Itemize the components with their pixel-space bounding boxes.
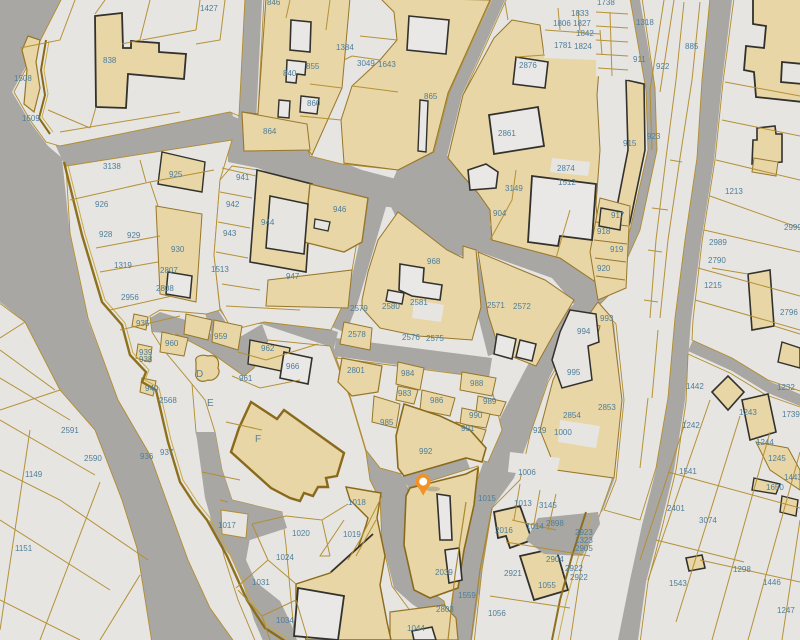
svg-text:2922: 2922: [570, 573, 588, 582]
svg-text:940: 940: [145, 384, 159, 393]
svg-text:1806 1827: 1806 1827: [553, 19, 591, 28]
svg-text:1443: 1443: [784, 473, 800, 482]
svg-text:1013: 1013: [514, 499, 532, 508]
svg-text:968: 968: [427, 257, 441, 266]
svg-text:1559: 1559: [458, 591, 476, 600]
svg-text:986: 986: [430, 396, 444, 405]
svg-text:929: 929: [127, 231, 141, 240]
svg-text:988: 988: [470, 379, 484, 388]
svg-text:2591: 2591: [61, 426, 79, 435]
svg-text:1650: 1650: [766, 483, 784, 492]
svg-text:1044: 1044: [407, 624, 425, 633]
svg-text:2581: 2581: [410, 298, 428, 307]
svg-text:990: 990: [469, 411, 483, 420]
svg-text:1541: 1541: [679, 467, 697, 476]
svg-text:1242: 1242: [682, 421, 700, 430]
svg-text:1824: 1824: [574, 42, 592, 51]
svg-text:1643: 1643: [378, 60, 396, 69]
svg-text:1319: 1319: [114, 261, 132, 270]
svg-text:2575: 2575: [426, 334, 444, 343]
svg-text:2898: 2898: [546, 519, 564, 528]
svg-text:840: 840: [283, 69, 297, 78]
svg-text:2016: 2016: [495, 526, 513, 535]
svg-text:2999: 2999: [784, 223, 800, 232]
svg-text:2571: 2571: [487, 301, 505, 310]
svg-text:1543: 1543: [669, 579, 687, 588]
svg-text:3074: 3074: [699, 516, 717, 525]
svg-text:838: 838: [103, 56, 117, 65]
svg-text:2568: 2568: [159, 396, 177, 405]
svg-text:960: 960: [165, 339, 179, 348]
svg-text:941: 941: [236, 173, 250, 182]
svg-text:1781: 1781: [554, 41, 572, 50]
svg-text:1833: 1833: [571, 9, 589, 18]
svg-text:3145: 3145: [539, 501, 557, 510]
svg-text:1446: 1446: [763, 578, 781, 587]
svg-text:944: 944: [261, 218, 275, 227]
svg-text:3138: 3138: [103, 162, 121, 171]
svg-text:1247: 1247: [777, 606, 795, 615]
svg-text:994: 994: [577, 327, 591, 336]
svg-text:943: 943: [223, 229, 237, 238]
svg-text:938: 938: [139, 355, 153, 364]
svg-text:1842: 1842: [576, 29, 594, 38]
svg-text:1232: 1232: [777, 383, 795, 392]
svg-text:1442: 1442: [686, 382, 704, 391]
svg-text:2576: 2576: [402, 333, 420, 342]
svg-text:1006: 1006: [518, 468, 536, 477]
svg-text:1244: 1244: [756, 438, 774, 447]
svg-text:2876: 2876: [519, 61, 537, 70]
svg-text:2989: 2989: [709, 238, 727, 247]
svg-text:1019: 1019: [343, 530, 361, 539]
svg-text:2808: 2808: [156, 284, 174, 293]
svg-text:962: 962: [261, 344, 275, 353]
svg-text:1245: 1245: [768, 454, 786, 463]
svg-text:992: 992: [419, 447, 433, 456]
svg-text:989: 989: [483, 397, 497, 406]
svg-text:942: 942: [226, 200, 240, 209]
svg-text:2572: 2572: [513, 302, 531, 311]
svg-text:1149: 1149: [25, 470, 43, 479]
svg-text:929: 929: [533, 426, 547, 435]
svg-text:985: 985: [380, 418, 394, 427]
svg-text:1151: 1151: [15, 544, 33, 553]
svg-text:1015: 1015: [478, 494, 496, 503]
svg-text:918: 918: [597, 227, 611, 236]
svg-text:3149: 3149: [505, 184, 523, 193]
svg-text:2861: 2861: [498, 129, 516, 138]
svg-text:1509: 1509: [22, 114, 40, 123]
svg-text:904: 904: [493, 209, 507, 218]
svg-text:1034: 1034: [276, 616, 294, 625]
svg-text:2578: 2578: [348, 330, 366, 339]
svg-text:855: 855: [306, 62, 320, 71]
svg-text:2807: 2807: [160, 266, 178, 275]
svg-text:1014: 1014: [526, 522, 544, 531]
svg-text:983: 983: [398, 389, 412, 398]
svg-text:2803: 2803: [436, 605, 454, 614]
svg-text:2579: 2579: [350, 304, 368, 313]
svg-text:860: 860: [307, 99, 321, 108]
svg-text:984: 984: [401, 369, 415, 378]
svg-text:1024: 1024: [276, 553, 294, 562]
svg-text:1018: 1018: [348, 498, 366, 507]
svg-text:1243: 1243: [739, 408, 757, 417]
svg-text:2796: 2796: [780, 308, 798, 317]
svg-text:936: 936: [140, 452, 154, 461]
svg-text:2580: 2580: [382, 302, 400, 311]
svg-text:991: 991: [461, 424, 475, 433]
svg-text:1508: 1508: [14, 74, 32, 83]
svg-text:961: 961: [239, 374, 253, 383]
svg-text:885: 885: [685, 42, 699, 51]
svg-text:1056: 1056: [488, 609, 506, 618]
svg-text:925: 925: [169, 170, 183, 179]
svg-text:2853: 2853: [598, 403, 616, 412]
svg-text:966: 966: [286, 362, 300, 371]
svg-text:2854: 2854: [563, 411, 581, 420]
svg-text:2921: 2921: [504, 569, 522, 578]
svg-text:D: D: [196, 369, 203, 380]
svg-text:923: 923: [647, 132, 661, 141]
svg-text:920: 920: [597, 264, 611, 273]
svg-text:993: 993: [600, 314, 614, 323]
svg-text:959: 959: [214, 332, 228, 341]
svg-text:1055: 1055: [538, 581, 556, 590]
svg-text:1000: 1000: [554, 428, 572, 437]
svg-text:995: 995: [567, 368, 581, 377]
svg-text:922: 922: [656, 62, 670, 71]
svg-text:2874: 2874: [557, 164, 575, 173]
svg-text:947: 947: [286, 272, 300, 281]
svg-text:F: F: [255, 434, 261, 445]
svg-text:1031: 1031: [252, 578, 270, 587]
svg-text:865: 865: [424, 92, 438, 101]
svg-text:1427: 1427: [200, 4, 218, 13]
svg-text:1020: 1020: [292, 529, 310, 538]
svg-text:864: 864: [263, 127, 277, 136]
svg-text:911: 911: [633, 55, 646, 64]
svg-text:946: 946: [333, 205, 347, 214]
svg-text:3049: 3049: [357, 59, 375, 68]
svg-text:1213: 1213: [725, 187, 743, 196]
svg-text:2801: 2801: [347, 366, 365, 375]
svg-text:1298: 1298: [733, 565, 751, 574]
svg-text:1017: 1017: [218, 521, 236, 530]
svg-text:2922: 2922: [565, 564, 583, 573]
svg-text:926: 926: [95, 200, 109, 209]
svg-text:930: 930: [171, 245, 185, 254]
svg-text:1739: 1739: [782, 410, 800, 419]
svg-text:1513: 1513: [211, 265, 229, 274]
svg-text:2956: 2956: [121, 293, 139, 302]
svg-text:2790: 2790: [708, 256, 726, 265]
svg-text:2905: 2905: [575, 544, 593, 553]
svg-text:1318: 1318: [636, 18, 654, 27]
svg-text:E: E: [207, 398, 214, 409]
svg-text:919: 919: [610, 245, 624, 254]
svg-text:917: 917: [611, 211, 625, 220]
svg-text:1512: 1512: [558, 178, 576, 187]
svg-text:928: 928: [99, 230, 113, 239]
svg-text:1215: 1215: [704, 281, 722, 290]
svg-text:2039: 2039: [435, 568, 453, 577]
svg-text:2590: 2590: [84, 454, 102, 463]
svg-text:2904: 2904: [546, 555, 564, 564]
svg-text:1738: 1738: [597, 0, 615, 7]
svg-text:846: 846: [267, 0, 281, 7]
svg-text:915: 915: [623, 139, 637, 148]
svg-text:1384: 1384: [336, 43, 354, 52]
svg-text:2401: 2401: [667, 504, 685, 513]
svg-text:935: 935: [136, 319, 150, 328]
svg-text:937: 937: [160, 448, 174, 457]
